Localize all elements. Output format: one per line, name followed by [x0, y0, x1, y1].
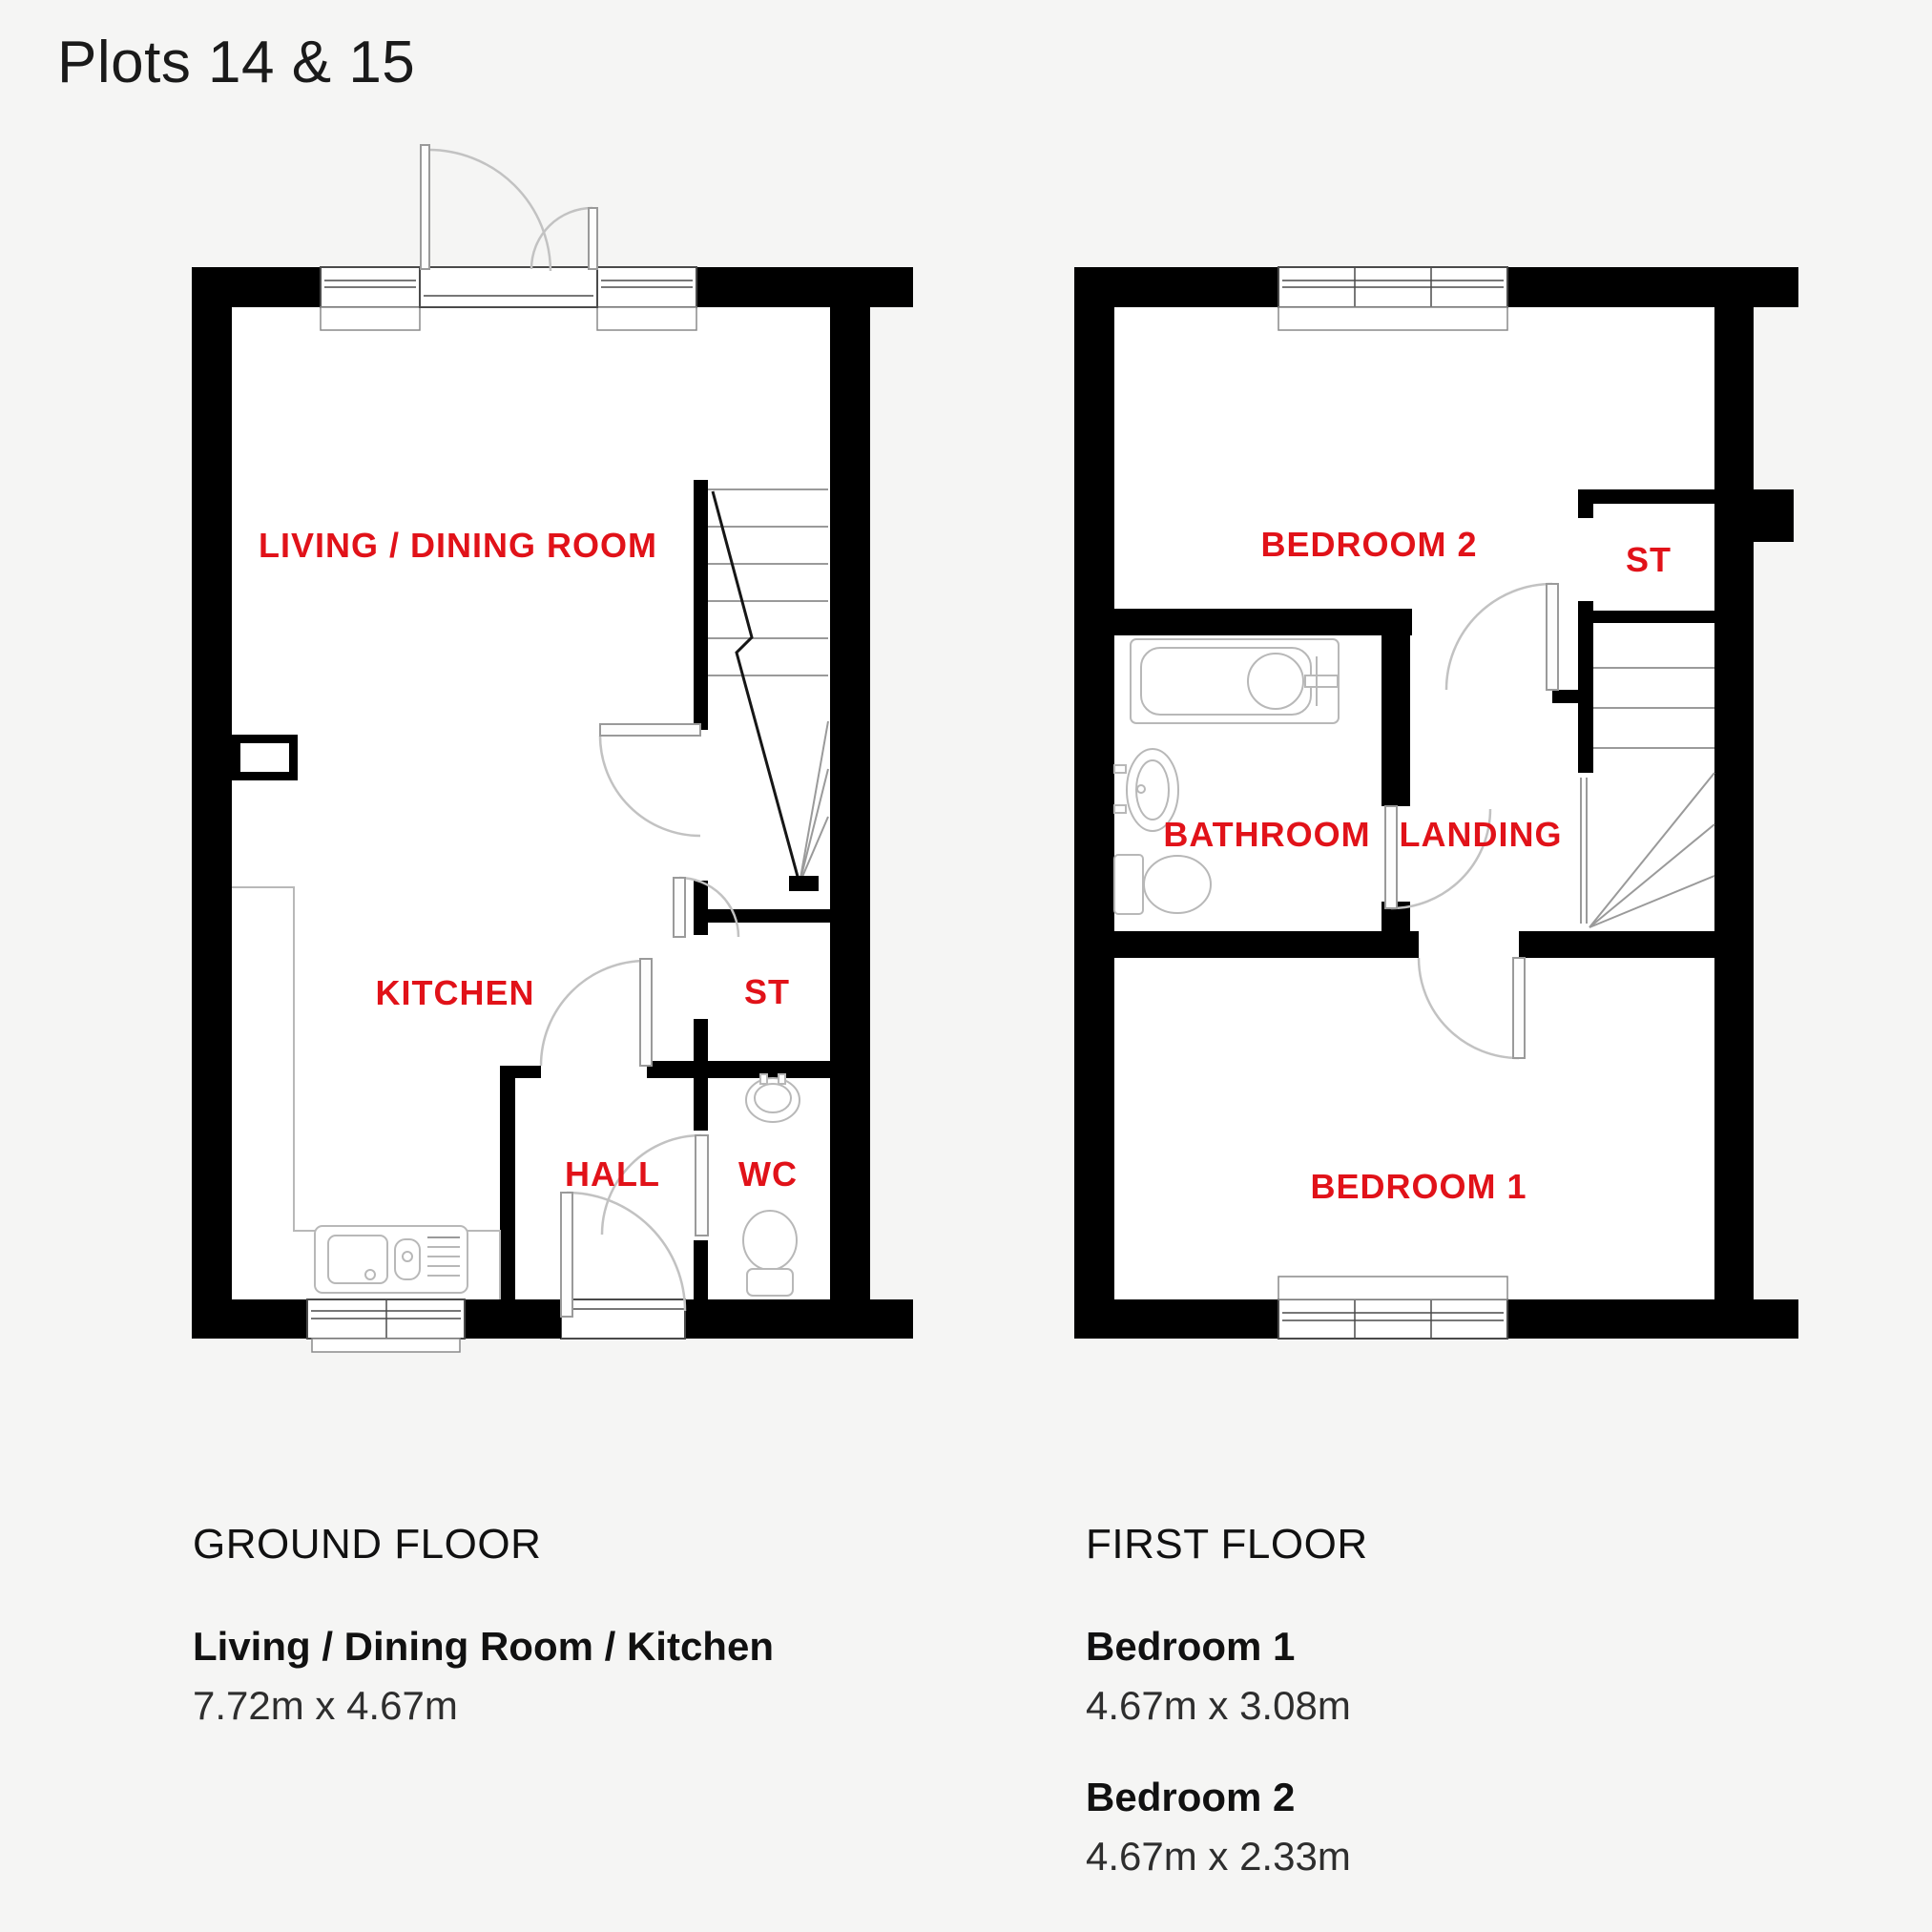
- bedroom-2-window: [1278, 267, 1507, 330]
- room-name: Living / Dining Room / Kitchen: [193, 1624, 774, 1670]
- wc-toilet: [743, 1211, 797, 1296]
- room-dimensions: 4.67m x 3.08m: [1086, 1683, 1368, 1729]
- first-floor-caption-item-1: Bedroom 1 4.67m x 3.08m: [1086, 1624, 1368, 1729]
- ground-floor-plan: [192, 145, 913, 1352]
- first-floor-caption: FIRST FLOOR Bedroom 1 4.67m x 3.08m Bedr…: [1086, 1521, 1368, 1880]
- ground-floor-caption: GROUND FLOOR Living / Dining Room / Kitc…: [193, 1521, 774, 1729]
- room-label-living-dining-room: LIVING / DINING ROOM: [259, 526, 657, 566]
- room-label-bathroom: BATHROOM: [1163, 815, 1370, 855]
- french-doors: [420, 145, 597, 307]
- room-label-landing: LANDING: [1400, 815, 1563, 855]
- ground-floor-heading: GROUND FLOOR: [193, 1521, 774, 1568]
- ground-floor-caption-item: Living / Dining Room / Kitchen 7.72m x 4…: [193, 1624, 774, 1729]
- room-label-bedroom-1: BEDROOM 1: [1310, 1167, 1527, 1207]
- bathtub: [1131, 639, 1339, 723]
- room-label-storage-ff: ST: [1626, 540, 1672, 580]
- living-room-window-left: [321, 267, 420, 330]
- room-label-kitchen: KITCHEN: [376, 973, 535, 1013]
- first-floor-caption-item-2: Bedroom 2 4.67m x 2.33m: [1086, 1775, 1368, 1880]
- room-label-hall: HALL: [565, 1154, 660, 1195]
- living-room-window-right: [597, 267, 696, 330]
- room-label-storage-gf: ST: [744, 972, 790, 1012]
- bedroom-1-window: [1278, 1277, 1507, 1339]
- first-floor-area: [1114, 307, 1714, 1299]
- first-floor-heading: FIRST FLOOR: [1086, 1521, 1368, 1568]
- room-name: Bedroom 1: [1086, 1624, 1368, 1670]
- room-label-bedroom-2: BEDROOM 2: [1260, 525, 1477, 565]
- room-dimensions: 4.67m x 2.33m: [1086, 1834, 1368, 1880]
- room-name: Bedroom 2: [1086, 1775, 1368, 1820]
- kitchen-window: [307, 1299, 465, 1352]
- ground-floor-area: [232, 307, 830, 1299]
- floorplan-page: Plots 14 & 15: [0, 0, 1932, 1932]
- room-dimensions: 7.72m x 4.67m: [193, 1683, 774, 1729]
- room-label-wc: WC: [738, 1154, 798, 1195]
- bathroom-toilet: [1114, 855, 1211, 914]
